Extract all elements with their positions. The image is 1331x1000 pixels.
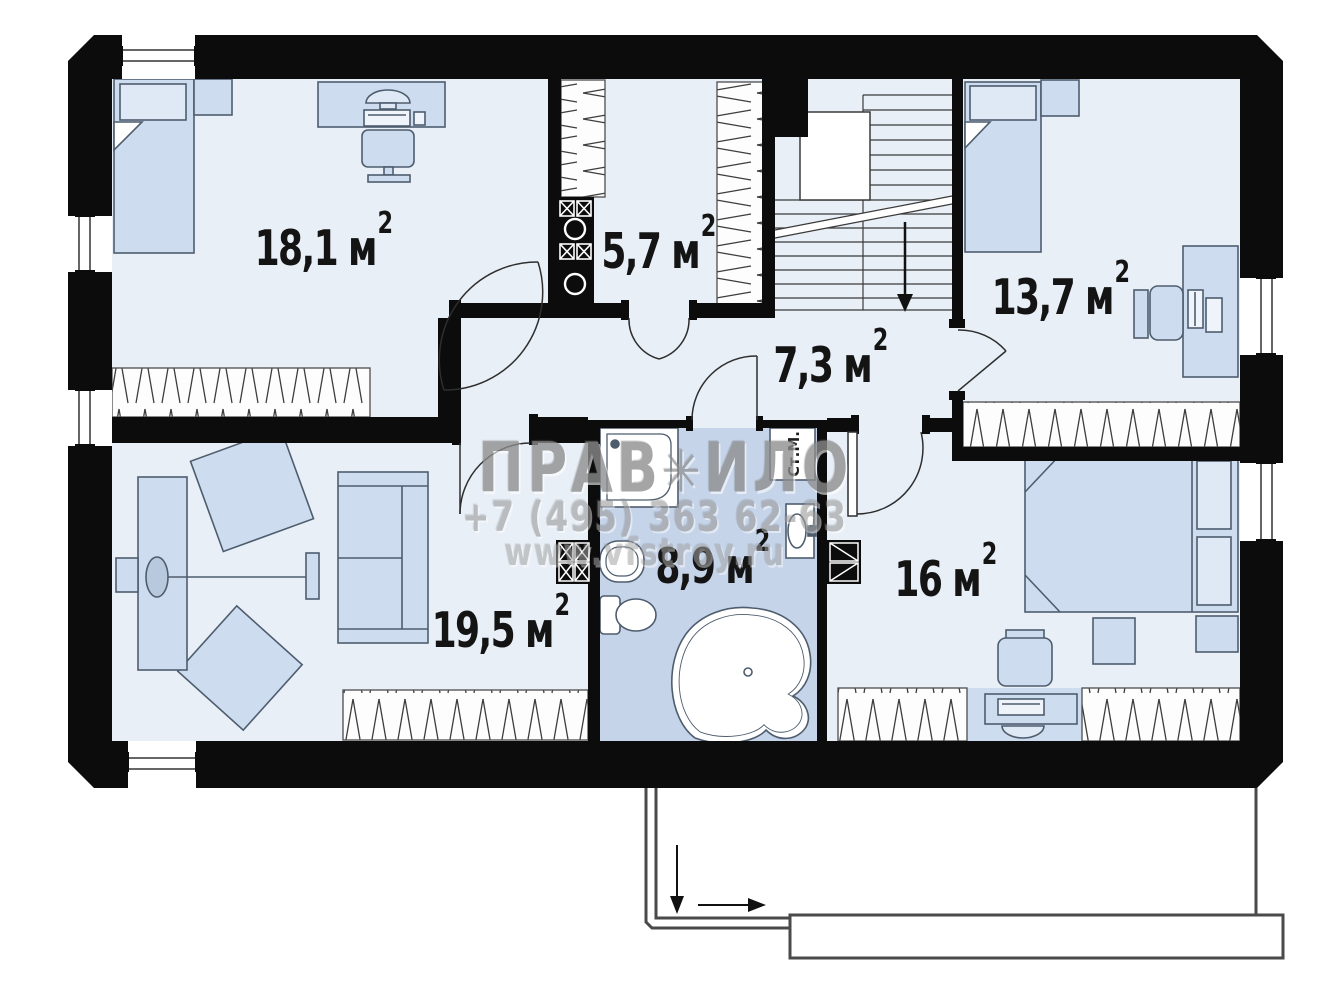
bed-icon	[1025, 455, 1238, 612]
toilet-icon	[600, 596, 656, 634]
terrace-outline	[646, 788, 1283, 958]
entrance-right-arrow	[698, 898, 766, 912]
chair-icon	[306, 553, 319, 599]
bed-icon	[114, 79, 194, 253]
chimney-icon	[556, 197, 594, 305]
floor-plan-page: 18,1 м2 5,7 м2 7,3 м2 13,7 м2 19,5 м2 8,…	[0, 0, 1331, 1000]
window-icon	[1240, 459, 1290, 544]
window-icon	[60, 212, 112, 275]
room-area-label-5-7: 5,7 м2	[601, 223, 714, 280]
window-icon	[118, 30, 199, 79]
chimney-icon	[827, 540, 861, 584]
room-area-label-18-1: 18,1 м2	[255, 220, 392, 277]
chair-icon	[998, 638, 1052, 686]
room-area-label-7-3: 7,3 м2	[773, 337, 886, 394]
room-area-label-19-5: 19,5 м2	[432, 602, 569, 659]
window-icon	[124, 741, 200, 791]
nightstand-icon	[194, 79, 232, 115]
window-icon	[60, 386, 112, 449]
room-area-label-16: 16 м2	[894, 551, 995, 608]
nightstand-icon	[1196, 616, 1238, 652]
window-icon	[1240, 274, 1290, 358]
nightstand-icon	[1041, 80, 1079, 116]
nightstand-icon	[1093, 618, 1135, 664]
chair-icon	[362, 130, 414, 167]
sofa-icon	[338, 472, 428, 643]
watermark-site: www.vfstroy.ru	[504, 531, 785, 575]
corner-bathtub-icon	[672, 607, 811, 743]
bed-icon	[965, 82, 1041, 252]
chair-icon	[1134, 290, 1148, 338]
room-area-label-13-7: 13,7 м2	[992, 269, 1129, 326]
entrance-down-arrow	[670, 845, 684, 914]
